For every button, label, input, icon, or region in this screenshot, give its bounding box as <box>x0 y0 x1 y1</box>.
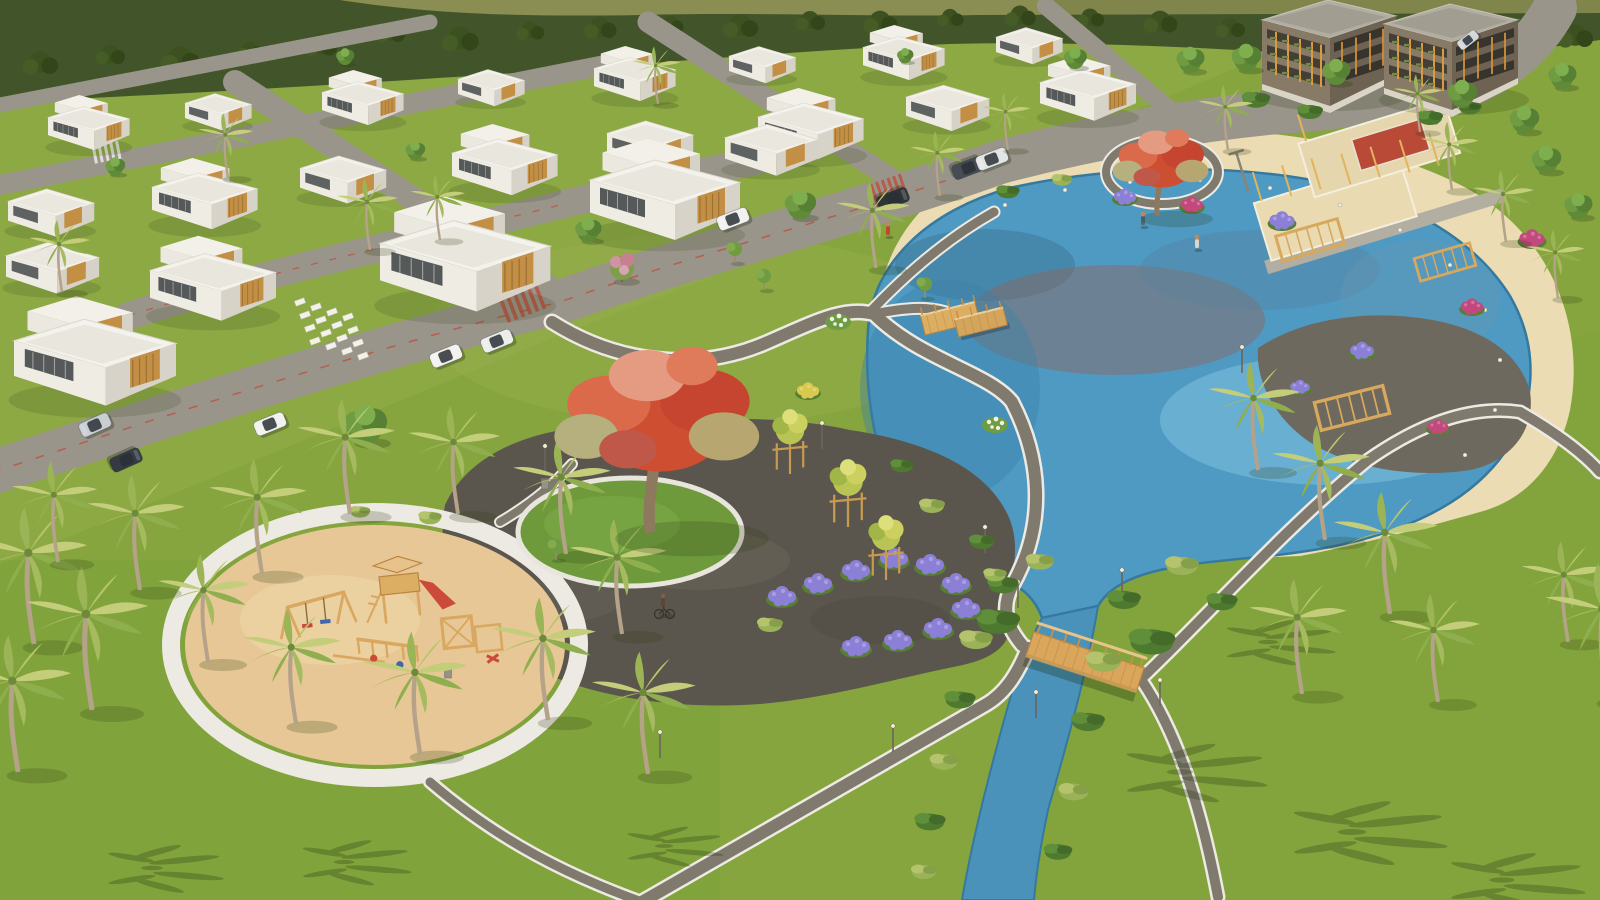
bollard-light <box>1338 203 1342 207</box>
apartment-drive <box>1182 118 1358 126</box>
bollard-light <box>1268 186 1272 190</box>
bollard-light <box>1398 228 1402 232</box>
apartment-buildings <box>1257 0 1529 117</box>
aerial-render-screenshot <box>0 0 1600 900</box>
bollard-light <box>1063 188 1067 192</box>
bollard-light <box>1003 203 1007 207</box>
bollard-light <box>1498 358 1502 362</box>
bollard-light <box>1448 263 1452 267</box>
bollard-light <box>1463 453 1467 457</box>
bollard-light <box>1493 408 1497 412</box>
scene-canvas <box>0 0 1600 900</box>
